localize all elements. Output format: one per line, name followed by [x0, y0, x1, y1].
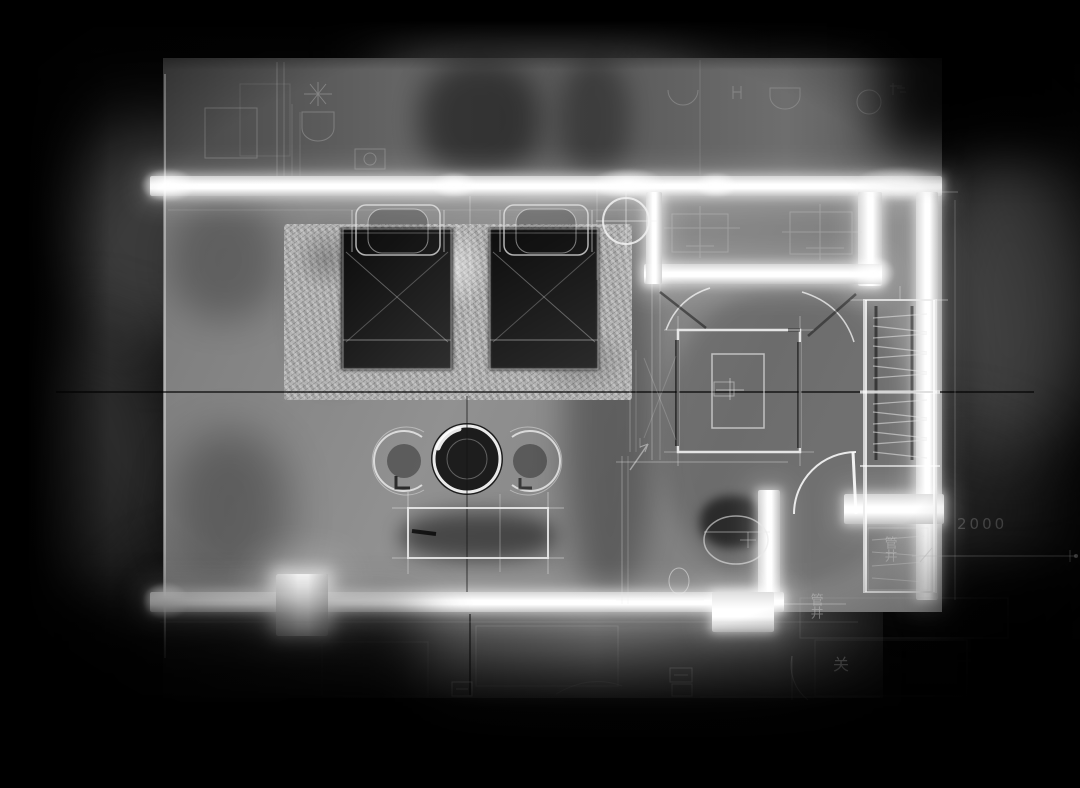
- vignette: [0, 0, 1080, 788]
- floor-plan-render: 2000 管井 管井 关: [0, 0, 1080, 788]
